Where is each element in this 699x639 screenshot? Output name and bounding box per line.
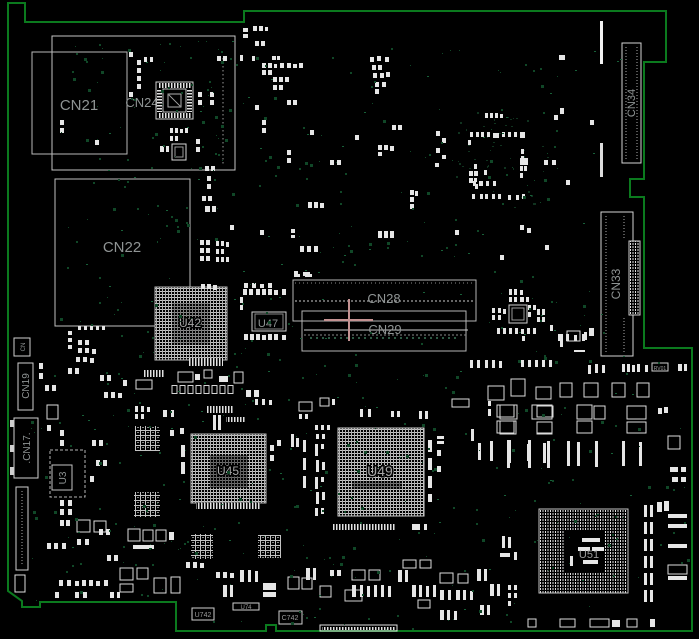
svg-text:U42: U42 <box>179 316 201 330</box>
svg-text:CN24: CN24 <box>125 95 158 110</box>
svg-text:RV01: RV01 <box>654 366 667 372</box>
svg-text:U74: U74 <box>240 605 252 611</box>
svg-text:C742: C742 <box>282 615 299 622</box>
svg-text:CN29: CN29 <box>368 322 401 337</box>
svg-text:CN28: CN28 <box>367 291 400 306</box>
svg-text:.CN17.: .CN17. <box>22 432 33 463</box>
svg-text:U51: U51 <box>579 549 599 561</box>
svg-text:CN22: CN22 <box>103 239 141 256</box>
svg-text:CN19: CN19 <box>21 373 32 399</box>
svg-text:CN21: CN21 <box>60 97 98 114</box>
svg-text:CN33: CN33 <box>609 268 623 299</box>
svg-text:U742: U742 <box>195 612 212 619</box>
svg-text:U3: U3 <box>58 471 69 484</box>
svg-text:CN34: CN34 <box>626 89 638 117</box>
svg-text:U49: U49 <box>367 463 393 479</box>
svg-text:CN: CN <box>21 343 27 352</box>
